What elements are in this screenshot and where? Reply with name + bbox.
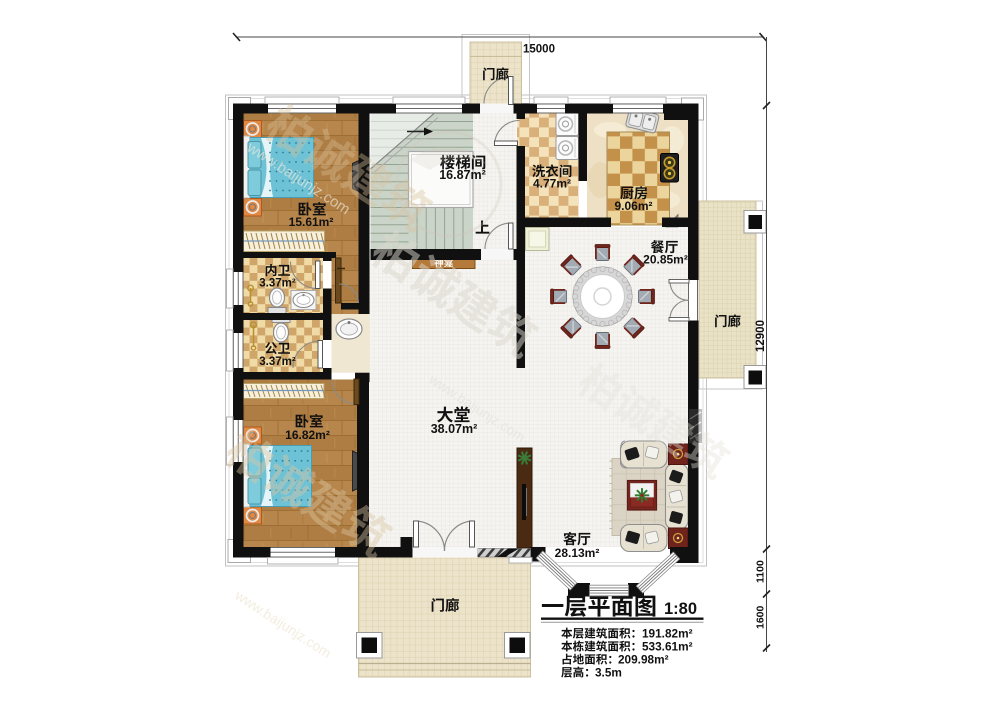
svg-text:3.37m²: 3.37m² <box>259 356 296 368</box>
svg-text:533.61m²: 533.61m² <box>642 640 693 654</box>
svg-text:1:80: 1:80 <box>664 600 697 618</box>
svg-text:28.13m²: 28.13m² <box>555 546 600 560</box>
svg-text:15000: 15000 <box>523 44 555 56</box>
svg-text:191.82m²: 191.82m² <box>642 627 693 641</box>
svg-text:16.87m²: 16.87m² <box>439 168 486 182</box>
svg-text:1600: 1600 <box>755 605 767 629</box>
svg-text:3.37m²: 3.37m² <box>259 278 296 290</box>
svg-text:38.07m²: 38.07m² <box>431 422 478 436</box>
svg-text:4.77m²: 4.77m² <box>533 177 571 191</box>
svg-text:9.06m²: 9.06m² <box>614 199 652 213</box>
svg-text:16.82m²: 16.82m² <box>285 428 330 442</box>
svg-text:20.85m²: 20.85m² <box>643 253 688 267</box>
svg-text:1100: 1100 <box>755 560 767 583</box>
svg-text:3.5m: 3.5m <box>595 666 622 680</box>
svg-text:15.61m²: 15.61m² <box>289 215 334 229</box>
svg-text:209.98m²: 209.98m² <box>618 653 669 667</box>
svg-text:12900: 12900 <box>755 320 767 352</box>
svg-text:www.baijunjz.com: www.baijunjz.com <box>232 587 335 662</box>
